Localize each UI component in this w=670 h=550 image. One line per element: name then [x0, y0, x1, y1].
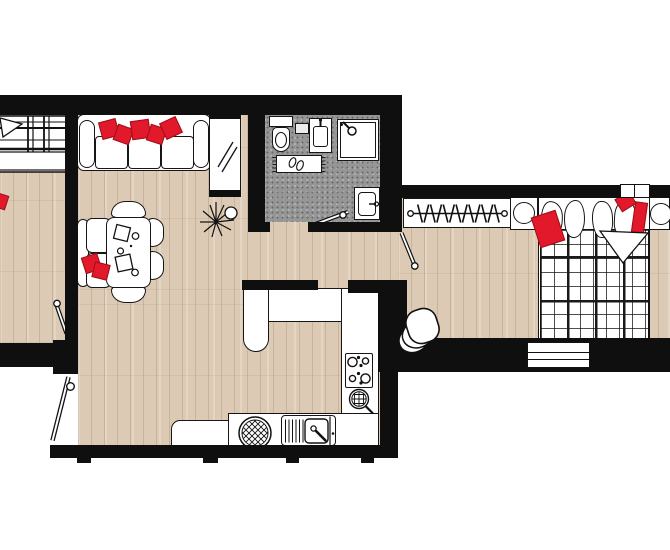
bedroom-chair — [394, 305, 442, 358]
floor-plan — [0, 0, 670, 550]
top-layer — [0, 0, 670, 550]
